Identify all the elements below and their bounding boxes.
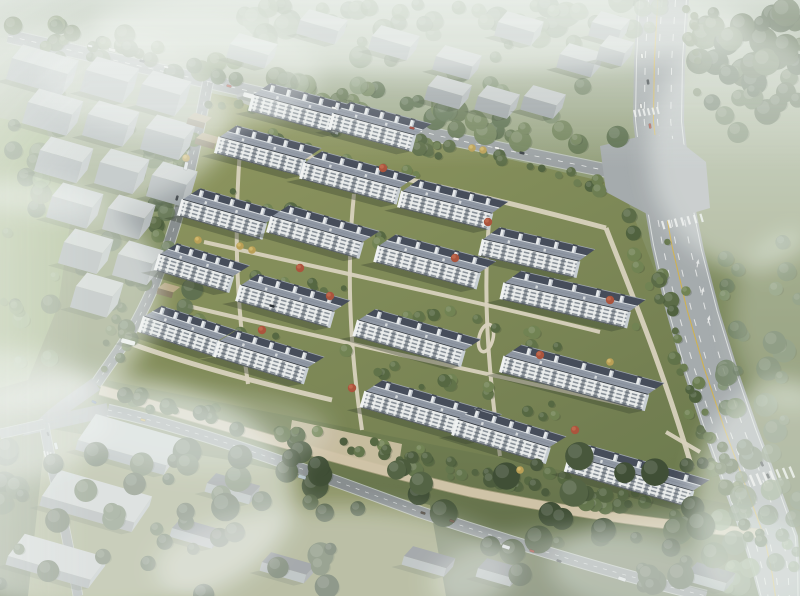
fog-haze-layer [0, 0, 800, 596]
aerial-render-viewport [0, 0, 800, 596]
aerial-rendering-canvas [0, 0, 800, 596]
